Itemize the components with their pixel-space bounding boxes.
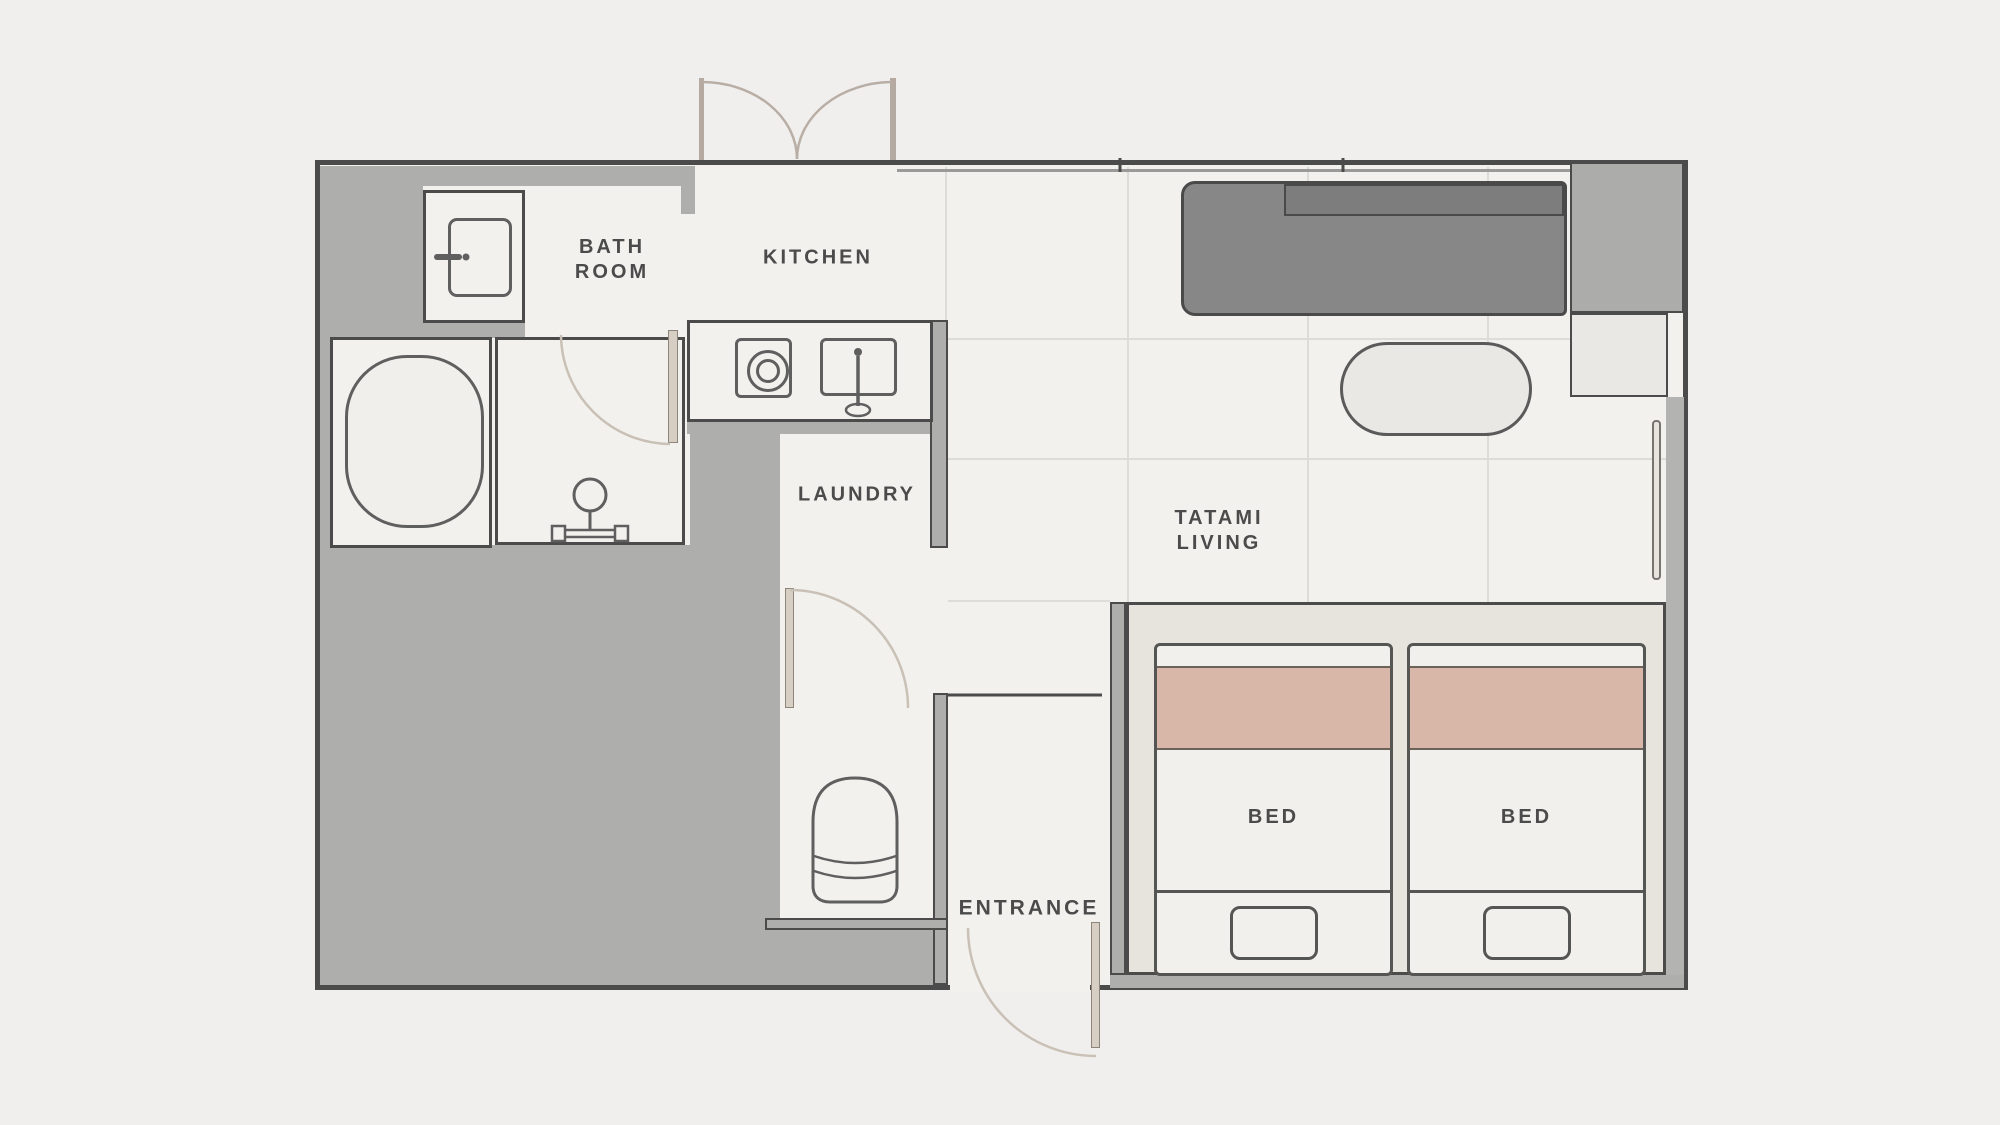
stove-icon	[735, 338, 792, 398]
tatami-grid-line	[945, 167, 947, 320]
bed-platform: BED BED	[1126, 602, 1666, 975]
hall-step-line-light	[948, 600, 1110, 602]
room-label-bathroom: BATHROOM	[575, 235, 649, 285]
vanity-icon	[448, 218, 512, 297]
double-door-left-post	[699, 78, 704, 160]
room-label-kitchen: KITCHEN	[763, 246, 873, 271]
wall-corridor-left	[690, 434, 780, 985]
bed-cushion	[1483, 906, 1571, 960]
platform-bottom-wall	[1110, 975, 1684, 988]
low-table	[1340, 342, 1532, 436]
bathroom-door-leaf	[668, 330, 678, 443]
bed-right: BED	[1407, 643, 1646, 976]
wall-top-left-band	[320, 166, 692, 186]
washing-room	[495, 337, 685, 545]
bathtub-icon	[345, 355, 484, 528]
wall-right-band	[1666, 397, 1684, 975]
sofa-backrest	[1284, 184, 1564, 216]
bed-left: BED	[1154, 643, 1393, 976]
tatami-grid-line	[948, 458, 1666, 460]
tatami-grid-line	[948, 338, 1666, 340]
wall-step	[681, 166, 695, 214]
sink-icon	[820, 338, 897, 396]
platform-left-wall	[1110, 602, 1126, 975]
blanket	[1157, 666, 1390, 750]
room-label-tatami-living: TATAMILIVING	[1174, 506, 1263, 556]
double-door-right-arc	[797, 82, 893, 159]
double-door-right-post	[890, 78, 896, 160]
room-label-laundry: LAUNDRY	[798, 483, 916, 508]
laundry-door-leaf	[785, 588, 794, 708]
wall-corridor-bottom	[765, 918, 948, 930]
footboard-line	[1410, 890, 1643, 893]
footboard-line	[1157, 890, 1390, 893]
wall-under-counter	[687, 422, 948, 434]
tatami-grid-line	[1127, 167, 1129, 602]
side-unit	[1570, 313, 1668, 397]
top-window-line	[897, 169, 1570, 172]
entrance-door-leaf	[1091, 922, 1100, 1048]
floor-plan-canvas: BED BED	[0, 0, 2000, 1125]
bed-cushion	[1230, 906, 1318, 960]
double-door-left-arc	[702, 82, 797, 159]
entrance-opening	[950, 980, 1090, 992]
wall-under-vanity	[320, 323, 525, 338]
room-label-entrance: ENTRANCE	[959, 896, 1100, 921]
wall-below-corridor	[780, 930, 948, 985]
wall-left-of-vanity	[320, 186, 423, 338]
blanket	[1410, 666, 1643, 750]
bed-label: BED	[1157, 806, 1390, 829]
wall-corridor-right-lower	[933, 693, 948, 985]
bed-label: BED	[1410, 806, 1643, 829]
corner-cabinet	[1570, 162, 1684, 313]
window-icon	[1652, 420, 1661, 580]
